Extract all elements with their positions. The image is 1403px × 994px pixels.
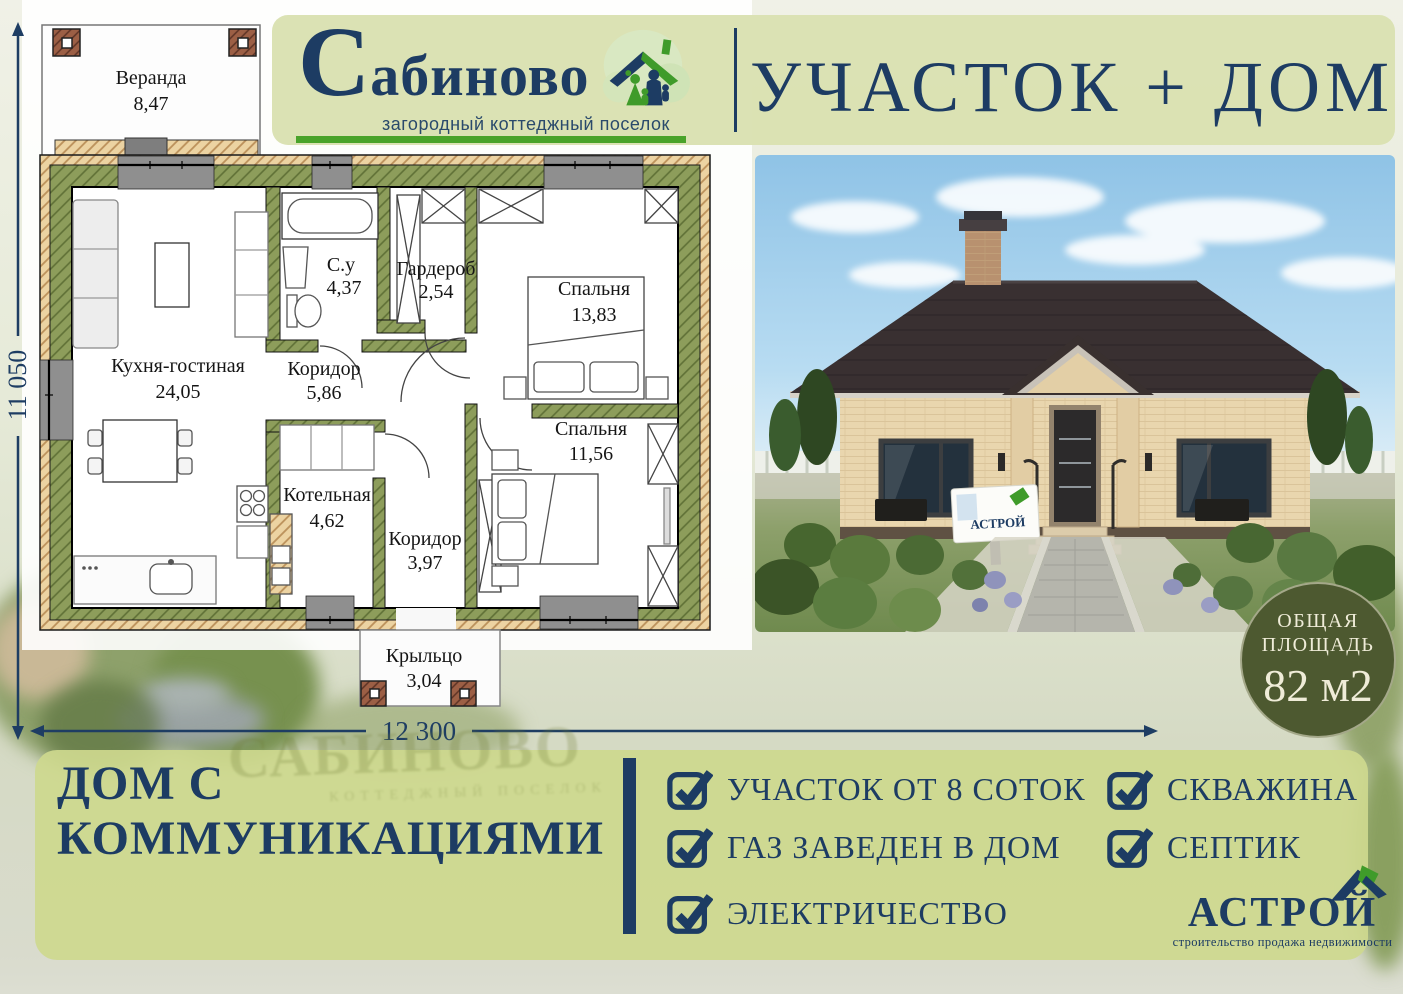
house-render: АСТРОЙ [755, 155, 1395, 632]
room-area: 3,97 [408, 552, 443, 574]
feature-label: СЕПТИК [1167, 829, 1301, 866]
feature-label: СКВАЖИНА [1167, 771, 1358, 808]
feature-item: ЭЛЕКТРИЧЕСТВО [667, 890, 1086, 936]
checkbox-icon [667, 766, 713, 812]
checkbox-icon [667, 890, 713, 936]
brand-wordmark: Сабиново [298, 17, 590, 109]
house-photo: АСТРОЙ [755, 155, 1395, 632]
developer-logo: АСТРОЙ строительство продажа недвижимост… [1160, 875, 1403, 950]
room-area: 8,47 [134, 93, 169, 115]
developer-tagline: строительство продажа недвижимости [1160, 935, 1403, 950]
room-area: 3,04 [407, 670, 442, 692]
features-column-2: СКВАЖИНА СЕПТИК [1107, 762, 1358, 870]
room-label: Спальня [558, 278, 630, 300]
step [1043, 527, 1107, 536]
family-house-icon [592, 25, 690, 125]
room-label: Коридор [388, 528, 461, 550]
feature-item: УЧАСТОК ОТ 8 СОТОК [667, 766, 1086, 812]
feature-label: ЭЛЕКТРИЧЕСТВО [727, 895, 1008, 932]
offer-headline: ДОМ С КОММУНИКАЦИЯМИ [57, 756, 604, 866]
total-area-badge: ОБЩАЯ ПЛОЩАДЬ 82 м2 [1240, 582, 1396, 738]
veranda-area [42, 25, 260, 158]
room-area: 2,54 [419, 281, 454, 303]
brand-underline [296, 136, 686, 143]
real-estate-flyer: Веранда 8,47 Кухня-гостиная 24,05 С.у 4,… [0, 0, 1403, 994]
room-area: 4,62 [310, 510, 345, 532]
room-area: 5,86 [307, 382, 342, 404]
room-label: Спальня [555, 418, 627, 440]
offer-panel: ДОМ С КОММУНИКАЦИЯМИ УЧАСТОК ОТ 8 СОТОК … [35, 750, 1368, 960]
room-area: 11,56 [569, 443, 613, 465]
badge-line1: ОБЩАЯ [1277, 609, 1358, 633]
checkbox-icon [1107, 766, 1153, 812]
room-label: Котельная [283, 484, 371, 506]
room-area: 4,37 [327, 277, 362, 299]
room-label: Гардероб [397, 258, 476, 280]
room-area: 24,05 [156, 381, 201, 403]
wall-lamp [1145, 453, 1152, 471]
room-label: Веранда [116, 67, 187, 89]
header-divider [734, 28, 737, 132]
headline-line2: КОММУНИКАЦИЯМИ [57, 811, 604, 866]
wall-lamp [998, 453, 1005, 471]
signboard-text: АСТРОЙ [970, 514, 1026, 532]
porch-area [360, 630, 500, 706]
room-label: Крыльцо [386, 645, 463, 667]
feature-label: УЧАСТОК ОТ 8 СОТОК [727, 771, 1086, 808]
checkbox-icon [1107, 824, 1153, 870]
room-label: Кухня-гостиная [111, 355, 245, 377]
headline-line1: ДОМ С [57, 756, 604, 811]
vent [1195, 499, 1249, 521]
room-label: Коридор [287, 358, 360, 380]
feature-label: ГАЗ ЗАВЕДЕН В ДОМ [727, 829, 1061, 866]
offer-divider [623, 758, 636, 934]
vent [875, 499, 927, 521]
badge-value: 82 м2 [1263, 660, 1373, 712]
room-label: С.у [327, 254, 355, 276]
features-column-1: УЧАСТОК ОТ 8 СОТОК ГАЗ ЗАВЕДЕН В ДОМ ЭЛЕ… [667, 762, 1086, 936]
feature-item: СКВАЖИНА [1107, 766, 1358, 812]
feature-item: СЕПТИК [1107, 824, 1358, 870]
brand-rest: абиново [370, 43, 589, 108]
roof-icon [1331, 863, 1393, 903]
feature-item: ГАЗ ЗАВЕДЕН В ДОМ [667, 824, 1086, 870]
entry-door [1054, 410, 1096, 522]
checkbox-icon [667, 824, 713, 870]
header-panel: Сабиново загородный коттеджный поселок У… [272, 15, 1395, 145]
room-area: 13,83 [572, 304, 617, 326]
brand-initial: С [298, 6, 370, 117]
offer-title: УЧАСТОК + ДОМ [750, 39, 1390, 135]
badge-line2: ПЛОЩАДЬ [1262, 633, 1375, 657]
